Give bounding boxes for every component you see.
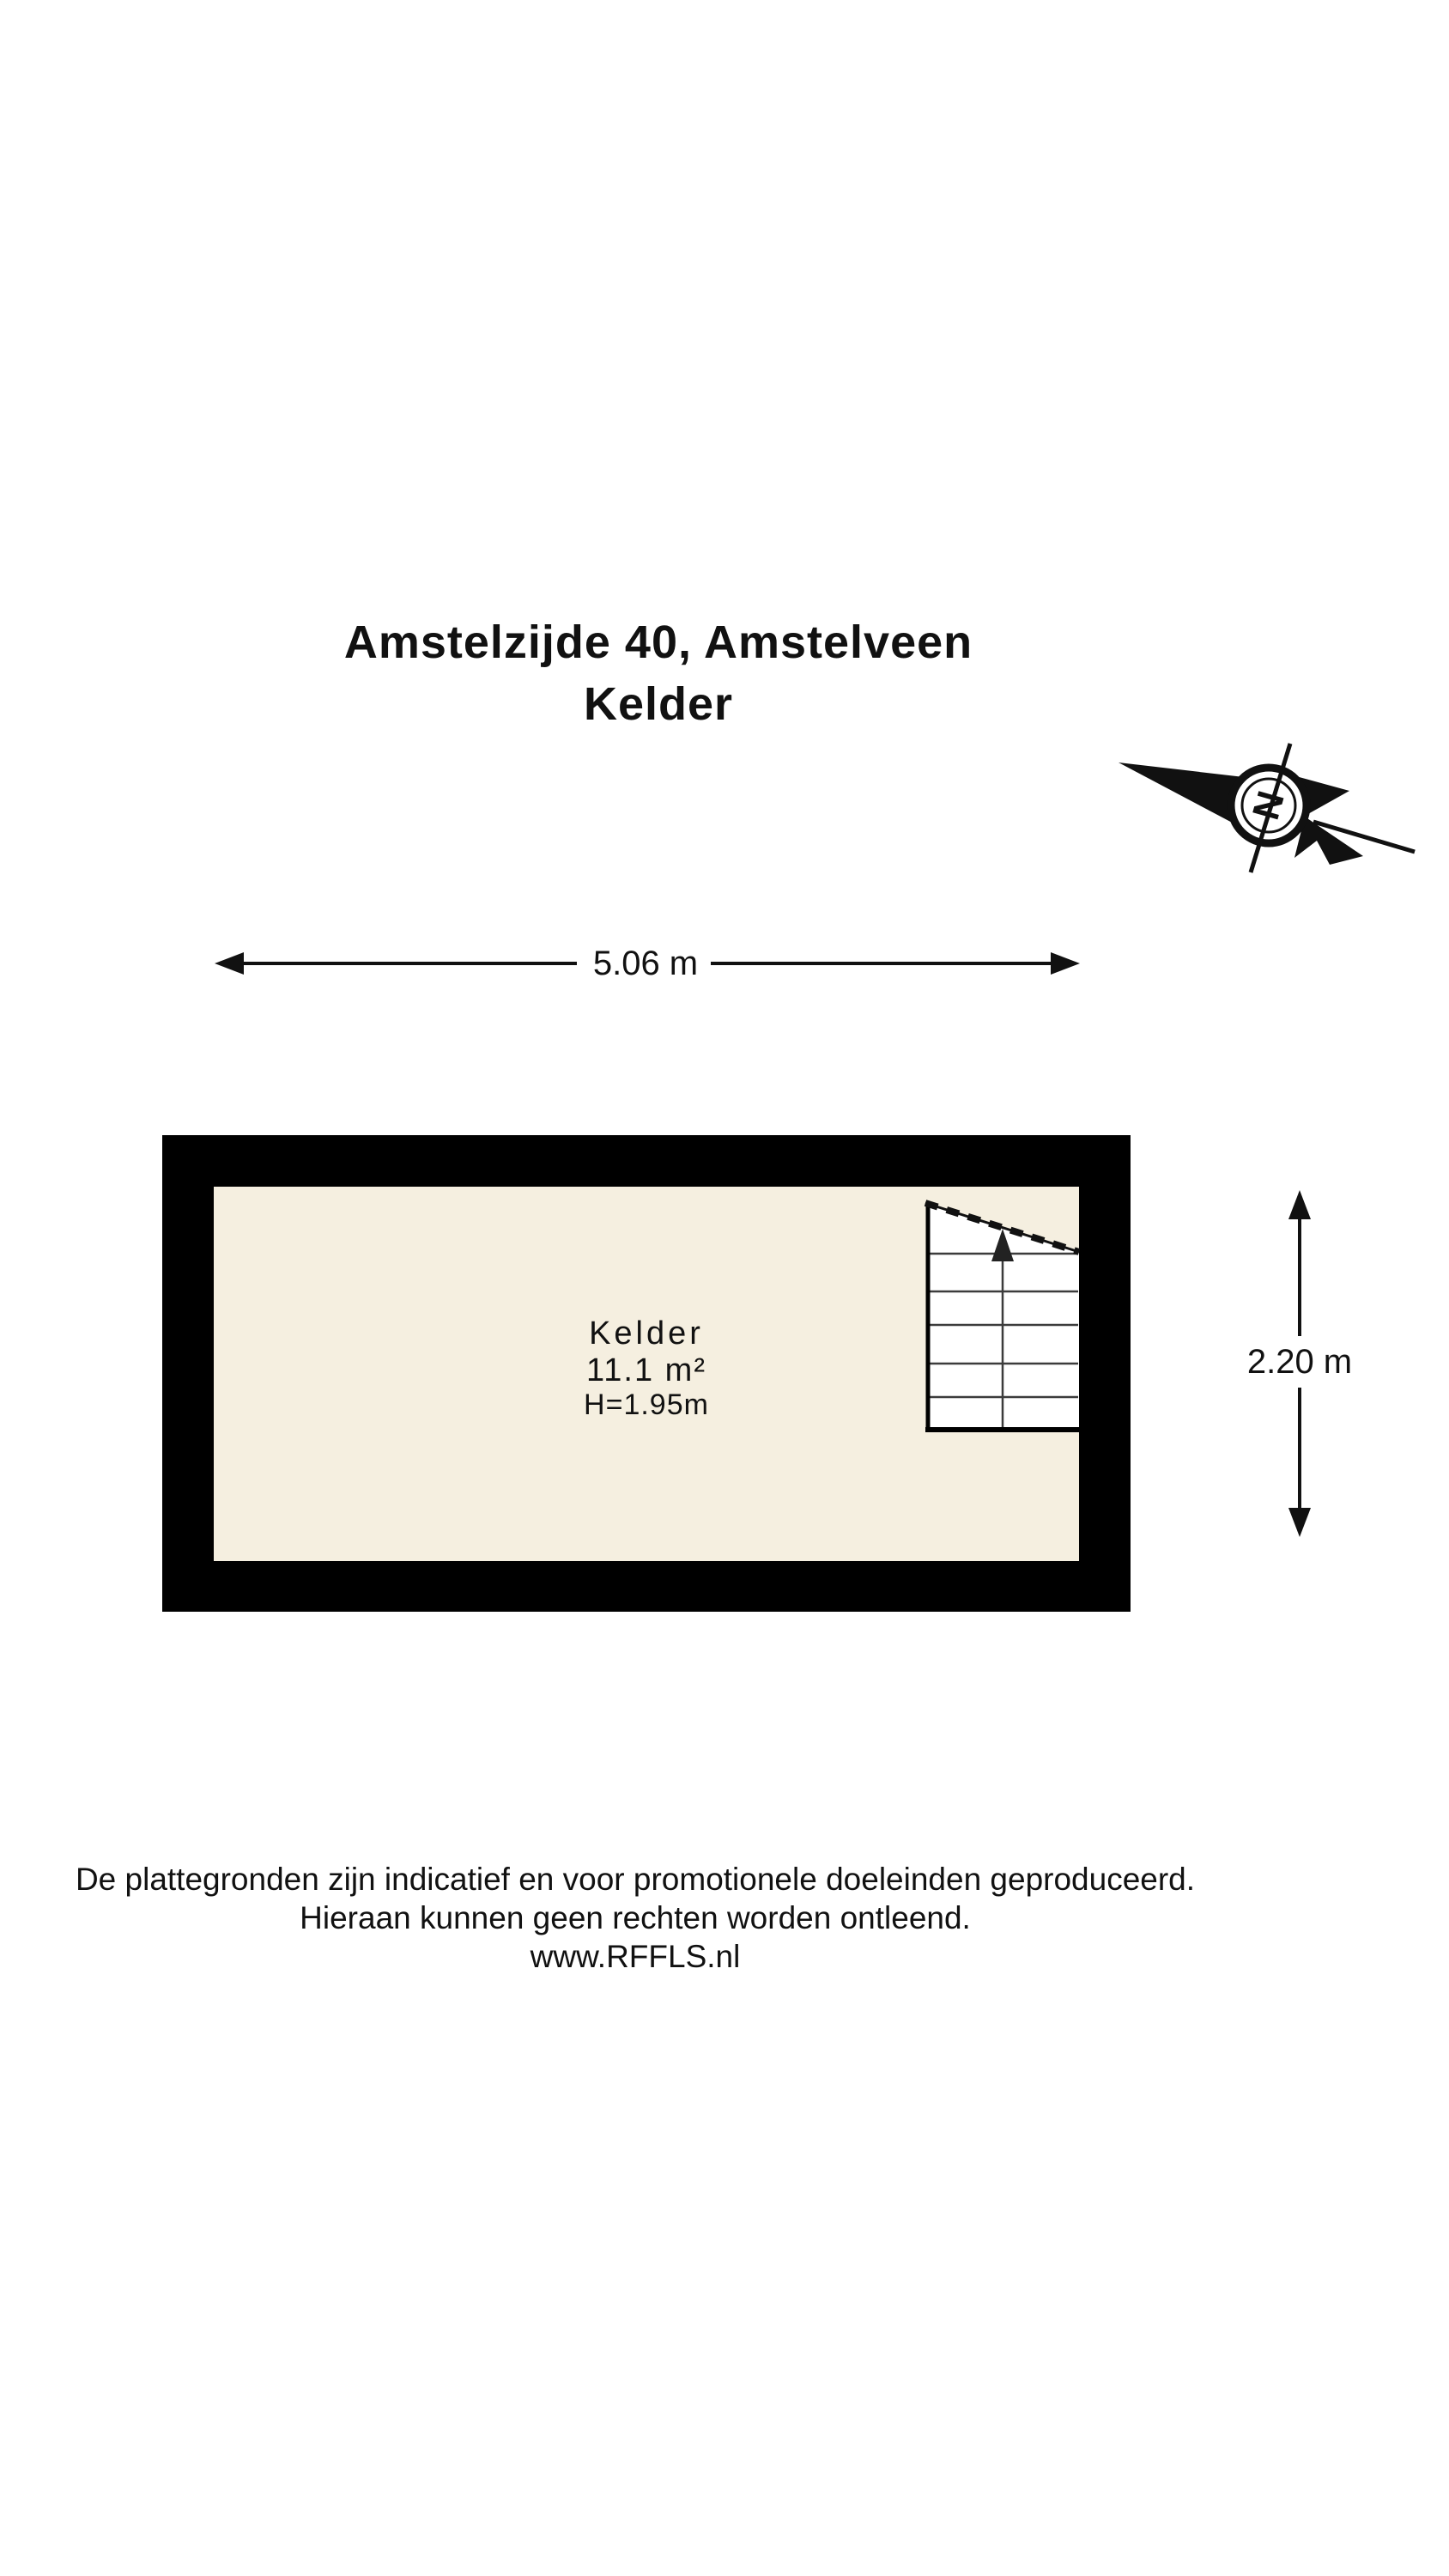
height-dimension: 2.20 m <box>1236 1178 1391 1552</box>
disclaimer-line-1: De plattegronden zijn indicatief en voor… <box>0 1860 1270 1899</box>
width-dimension-label: 5.06 m <box>593 945 698 982</box>
website-url: www.RFFLS.nl <box>0 1937 1270 1976</box>
height-dimension-arrow-top <box>1288 1190 1311 1219</box>
height-dimension-label: 2.20 m <box>1247 1343 1352 1381</box>
floorplan-page: Amstelzijde 40, Amstelveen Kelder N 5.06… <box>0 0 1449 2576</box>
width-dimension-arrow-right <box>1051 952 1080 975</box>
height-dimension-arrow-bottom <box>1288 1508 1311 1537</box>
width-dimension: 5.06 m <box>206 940 1090 988</box>
compass-needle <box>1119 762 1244 825</box>
width-dimension-arrow-left <box>215 952 244 975</box>
compass-north-icon: N <box>1099 726 1442 897</box>
disclaimer-line-2: Hieraan kunnen geen rechten worden ontle… <box>0 1899 1270 1937</box>
staircase <box>919 1194 1086 1443</box>
disclaimer: De plattegronden zijn indicatief en voor… <box>0 1860 1270 1976</box>
page-title: Amstelzijde 40, Amstelveen <box>0 611 1317 673</box>
title-block: Amstelzijde 40, Amstelveen Kelder <box>0 611 1317 735</box>
